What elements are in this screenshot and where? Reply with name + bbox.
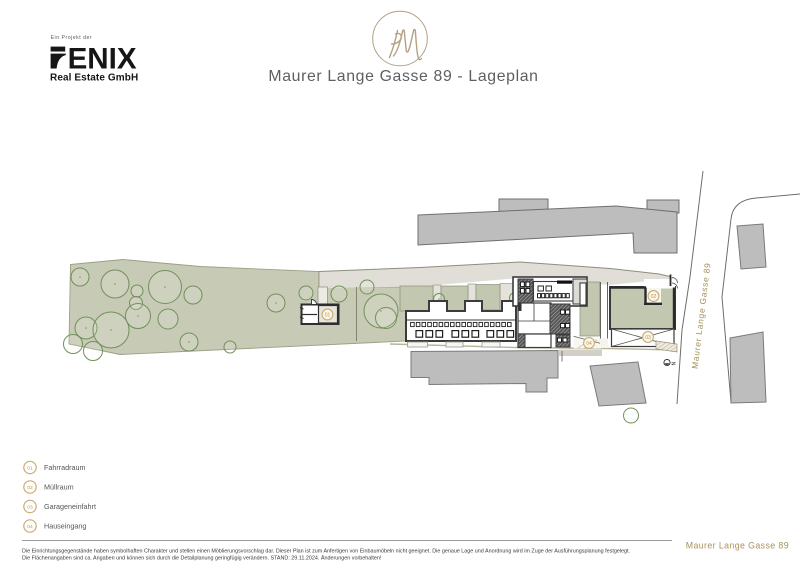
svg-text:03: 03 (27, 505, 33, 511)
svg-text:ENIX: ENIX (68, 43, 137, 76)
svg-text:Die Einrichtungsgegenstände ha: Die Einrichtungsgegenstände haben symbol… (22, 549, 630, 555)
svg-text:Die Flächenangaben sind ca. An: Die Flächenangaben sind ca. Angaben und … (22, 555, 382, 562)
svg-text:Garageneinfahrt: Garageneinfahrt (44, 502, 96, 511)
svg-text:Maurer Lange Gasse 89: Maurer Lange Gasse 89 (690, 262, 713, 370)
svg-text:Ein Projekt der: Ein Projekt der (51, 35, 93, 41)
svg-text:03: 03 (645, 335, 651, 341)
svg-text:Real Estate GmbH: Real Estate GmbH (50, 73, 138, 84)
svg-text:Müllraum: Müllraum (44, 483, 74, 492)
svg-text:Hauseingang: Hauseingang (44, 522, 86, 531)
svg-text:01: 01 (27, 466, 33, 472)
svg-text:Fahrradraum: Fahrradraum (44, 463, 86, 472)
svg-text:Maurer Lange Gasse 89: Maurer Lange Gasse 89 (686, 541, 789, 551)
svg-text:N: N (672, 361, 678, 365)
svg-text:02: 02 (651, 294, 657, 300)
svg-text:02: 02 (27, 485, 33, 491)
svg-text:01: 01 (325, 313, 331, 319)
svg-text:Maurer Lange Gasse 89 - Lagepl: Maurer Lange Gasse 89 - Lageplan (268, 68, 538, 85)
svg-text:04: 04 (586, 341, 592, 347)
svg-text:04: 04 (27, 524, 33, 530)
